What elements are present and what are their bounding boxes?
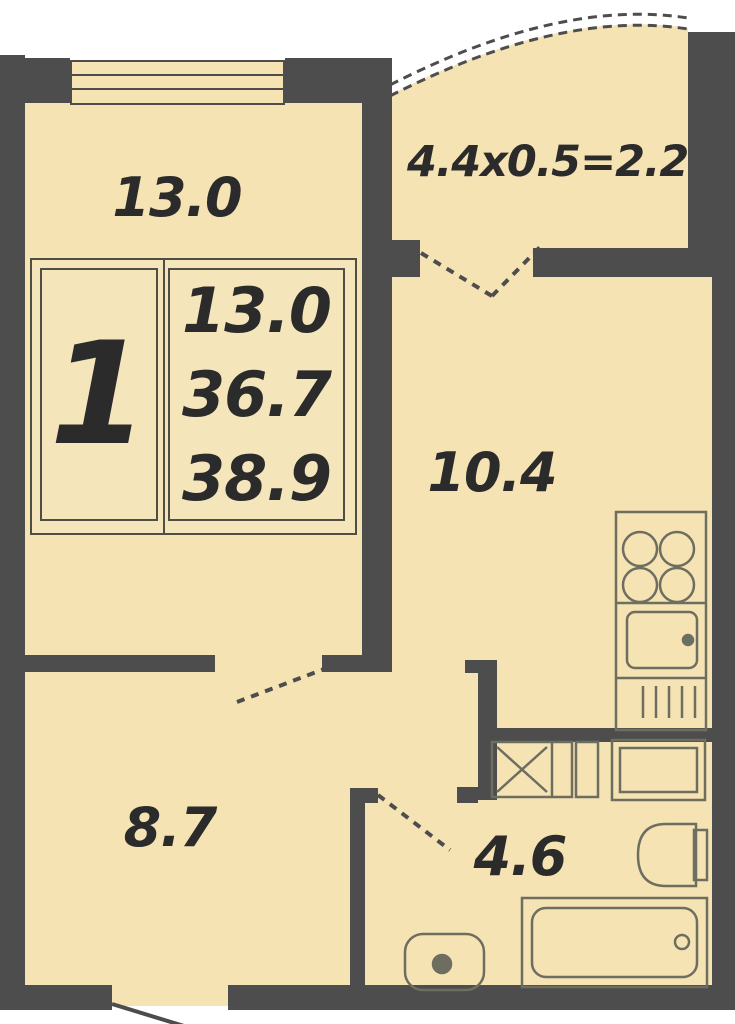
entry-door-leaf — [112, 1004, 184, 1024]
kitchen-unit-symbol — [616, 512, 706, 730]
living-room-door-swing — [237, 649, 377, 702]
room-count-label: 1 — [40, 268, 158, 521]
cabinet-symbol — [576, 740, 705, 800]
balcony-door-swing — [421, 247, 540, 296]
counter-drainboard-symbol — [643, 686, 695, 718]
balcony-dimensions-label: 4.4x0.5=2.2 — [407, 138, 667, 186]
washbasin-symbol — [405, 934, 484, 990]
stove-symbol — [623, 532, 694, 602]
bathroom-area-label: 4.6 — [420, 827, 620, 887]
area-figures: 13.0 36.7 38.9 — [168, 268, 345, 521]
hall-area-label: 8.7 — [70, 798, 270, 858]
floor-plan: 13.0 4.4x0.5=2.2 10.4 8.7 4.6 1 13.0 36.… — [0, 0, 735, 1024]
bathtub-symbol — [522, 898, 707, 987]
area-value: 36.7 — [182, 353, 331, 437]
toilet-symbol — [638, 824, 707, 886]
info-box-divider — [163, 260, 165, 533]
kitchen-area-label: 10.4 — [392, 443, 592, 503]
washing-machine-symbol — [492, 742, 572, 797]
apartment-info-box: 1 13.0 36.7 38.9 — [30, 258, 357, 535]
total-area-value: 38.9 — [182, 437, 331, 521]
living-area-value: 13.0 — [182, 269, 331, 353]
kitchen-sink-symbol — [627, 612, 697, 668]
living-room-area-label: 13.0 — [77, 168, 277, 228]
